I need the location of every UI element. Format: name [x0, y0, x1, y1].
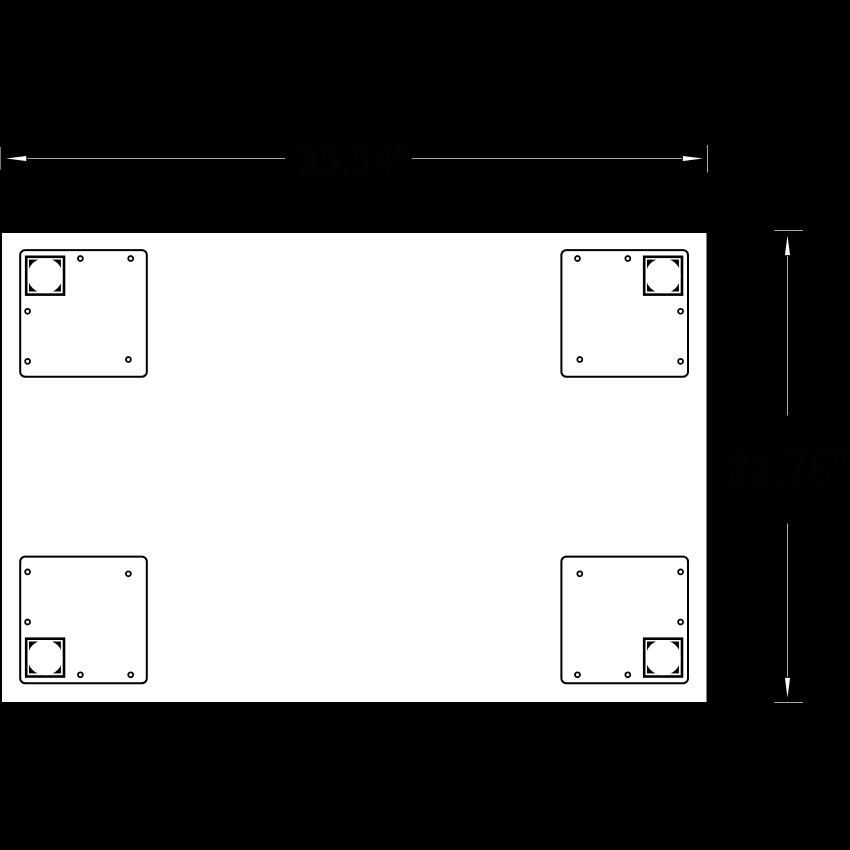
svg-text:35.54": 35.54": [297, 140, 408, 183]
svg-text:21.75": 21.75": [725, 445, 848, 493]
